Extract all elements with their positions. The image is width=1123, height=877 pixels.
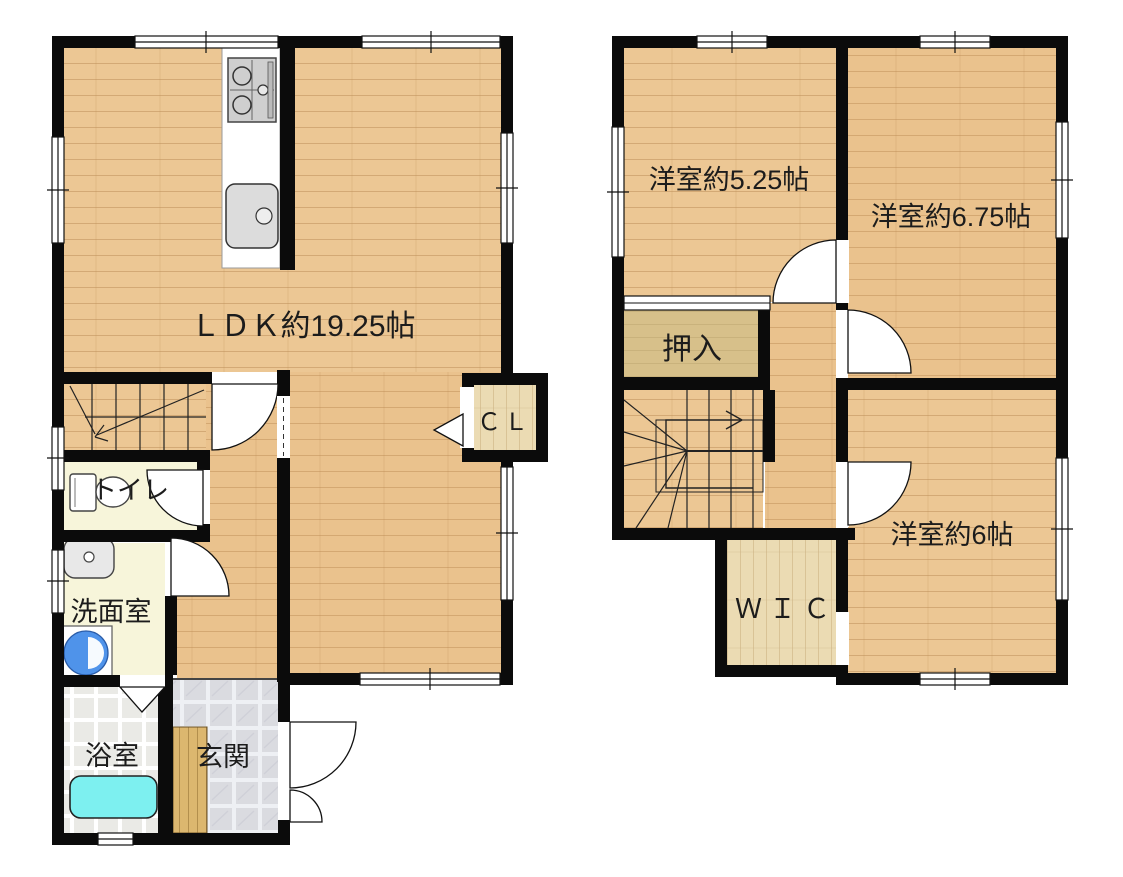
entrance-door-main [290,722,356,788]
floor1: ＬＤＫ約19.25帖 トイレ 洗面室 浴室 玄関 ＣＬ [47,31,548,845]
ldk-hall-opening [277,396,290,458]
entrance-label: 玄関 [196,742,250,772]
washing-machine [60,626,112,680]
oshiire-label: 押入 [662,333,722,366]
hall2-floor [765,303,836,528]
washroom-label: 洗面室 [71,597,152,627]
room525-label: 洋室約5.25帖 [649,165,810,195]
washbasin [64,538,114,578]
wic-opening [836,612,849,665]
stove [228,58,276,122]
bathroom-label: 浴室 [85,741,139,771]
cl-label: ＣＬ [477,409,531,436]
window [98,833,133,845]
wic-label: ＷＩＣ [735,594,837,624]
room6-label: 洋室約6帖 [890,520,1013,550]
entrance-door-child [290,790,322,822]
toilet-label: トイレ [91,475,169,505]
bathtub [70,776,157,818]
floor2: 洋室約5.25帖 洋室約6.75帖 洋室約6帖 押入 ＷＩＣ [607,31,1073,690]
room675-label: 洋室約6.75帖 [871,202,1032,232]
stairs2-floor [624,390,763,528]
kitchen-sink [226,184,278,248]
ldk-label: ＬＤＫ約19.25帖 [190,310,415,343]
oshiire-sliding-door [624,296,770,310]
floor-plan-page: ＬＤＫ約19.25帖 トイレ 洗面室 浴室 玄関 ＣＬ [0,0,1123,877]
stairs1-floor [58,379,206,450]
floor-plan-drawing: ＬＤＫ約19.25帖 トイレ 洗面室 浴室 玄関 ＣＬ [0,0,1123,877]
